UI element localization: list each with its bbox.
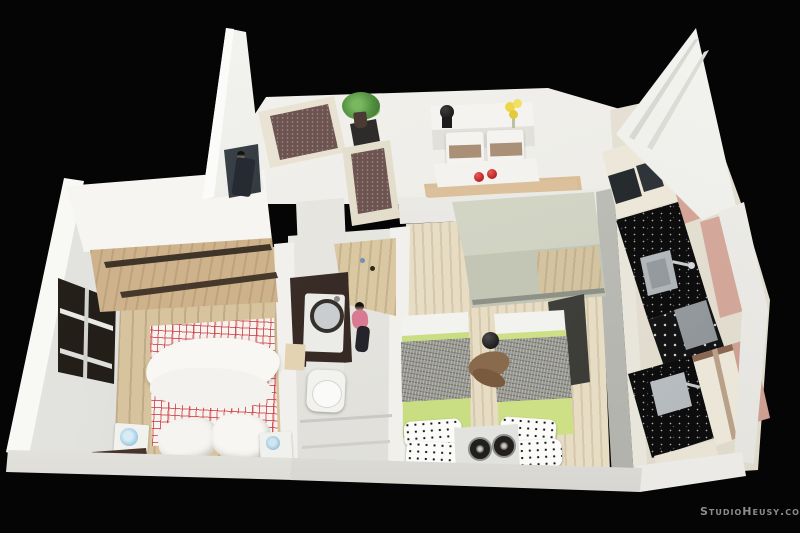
model-photo: StudioHeusy.com [0, 0, 800, 533]
chair-seat [449, 144, 481, 158]
watermark: StudioHeusy.com [700, 505, 800, 518]
chair-seat [490, 142, 522, 156]
red-apple [487, 169, 497, 179]
fan-hub [500, 442, 508, 450]
washing-machine-door [310, 299, 344, 333]
yellow-flower [509, 110, 518, 119]
table-fan [468, 437, 492, 461]
small-decor-item [360, 258, 365, 263]
red-apple [474, 172, 484, 182]
table-fan [492, 434, 516, 458]
washing-machine-dial [334, 296, 340, 302]
figurine-woman-legs [355, 325, 371, 352]
faucet-base [688, 262, 695, 269]
toilet-seat [312, 380, 342, 408]
small-decor-item [370, 266, 375, 271]
beige-storage-box [284, 343, 305, 370]
plant-pot [353, 111, 368, 128]
dining-chair [445, 131, 484, 164]
blue-rose-decor [120, 428, 138, 446]
blue-rose-decor [266, 436, 280, 450]
black-vase-base [442, 117, 452, 128]
dining-chair [486, 129, 524, 162]
black-ball [482, 332, 499, 349]
fan-hub [476, 445, 484, 453]
yellow-flower [513, 99, 522, 108]
